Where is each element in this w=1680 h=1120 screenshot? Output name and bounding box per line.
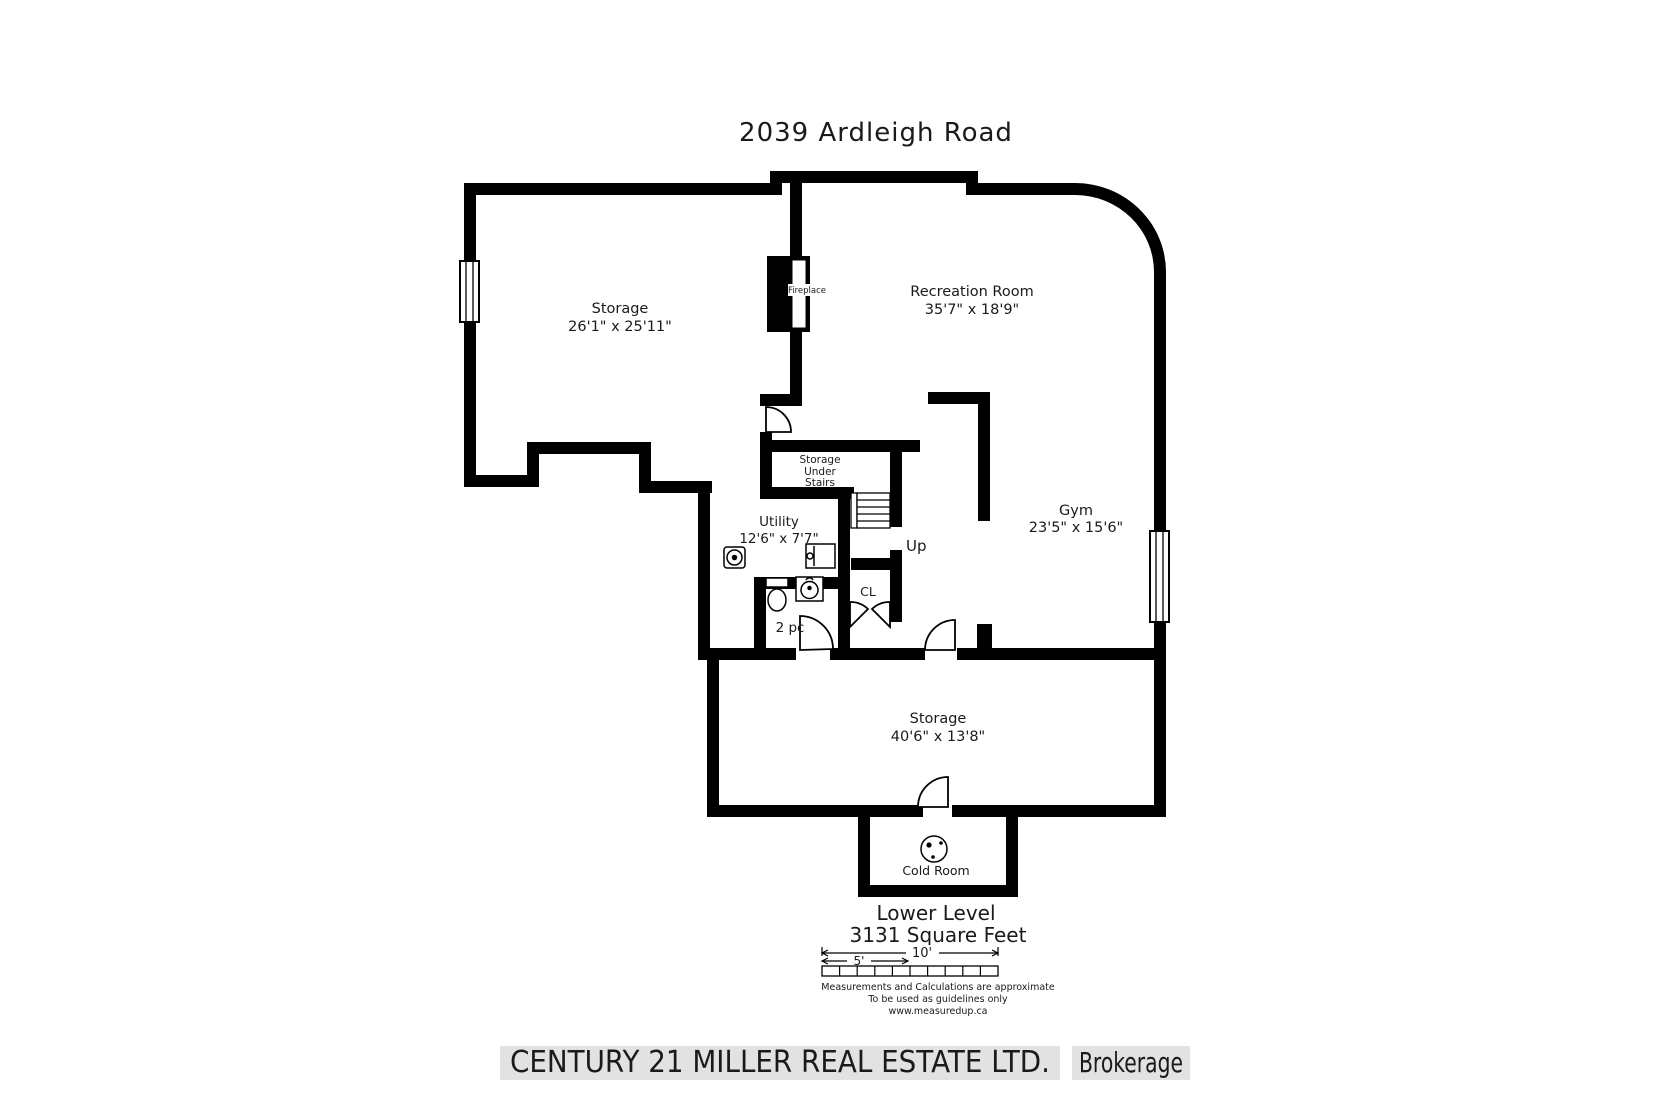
footer: Lower Level 3131 Square Feet — [850, 901, 1027, 947]
gym-name: Gym — [1059, 503, 1093, 519]
window-left — [460, 261, 479, 322]
window-right — [1150, 531, 1169, 622]
watermark-company: CENTURY 21 MILLER REAL ESTATE LTD. — [510, 1045, 1050, 1080]
fine-print: Measurements and Calculations are approx… — [821, 982, 1055, 1017]
closet-door-right — [872, 602, 890, 627]
storage-upper-name: Storage — [592, 301, 649, 317]
closet-door-left — [850, 602, 868, 627]
under-stairs-line1: Storage — [799, 454, 840, 466]
door-gym-storage — [925, 620, 955, 650]
plan-title: 2039 Ardleigh Road — [739, 118, 1013, 148]
scale-bar — [822, 945, 998, 976]
water-heater-icon — [806, 544, 835, 568]
watermark-suffix: Brokerage — [1079, 1046, 1183, 1079]
under-stairs-line3: Stairs — [805, 477, 835, 489]
fine-print-line2: To be used as guidelines only — [867, 994, 1008, 1005]
scale-5ft-label: 5' — [854, 954, 865, 968]
footer-area: 3131 Square Feet — [850, 923, 1027, 947]
utility-name: Utility — [759, 514, 799, 530]
fine-print-line1: Measurements and Calculations are approx… — [821, 982, 1055, 993]
sink-icon — [796, 577, 823, 601]
fine-print-line3: www.measuredup.ca — [888, 1006, 987, 1017]
closet-label: CL — [860, 584, 876, 599]
storage-upper-dims: 26'1" x 25'11" — [568, 319, 672, 335]
sump-pump-icon — [724, 547, 745, 568]
cold-room-label: Cold Room — [902, 863, 969, 878]
bathroom-label: 2 pc — [776, 620, 805, 636]
toilet-icon — [766, 578, 788, 611]
door-storage-hall — [766, 407, 791, 432]
floorplan-page: 2039 Ardleigh Road — [0, 0, 1680, 1120]
storage-lower-dims: 40'6" x 13'8" — [891, 729, 985, 745]
drain-icon — [921, 836, 947, 862]
staircase: Up — [851, 493, 927, 555]
recreation-dims: 35'7" x 18'9" — [925, 302, 1019, 318]
utility-dims: 12'6" x 7'7" — [739, 531, 818, 547]
scale-10ft-label: 10' — [912, 946, 932, 961]
brokerage-watermark: CENTURY 21 MILLER REAL ESTATE LTD. Broke… — [500, 1045, 1190, 1080]
floor-plan: 2039 Ardleigh Road — [0, 0, 1680, 1120]
fireplace-label: Fireplace — [788, 286, 826, 296]
gym-dims: 23'5" x 15'6" — [1029, 520, 1123, 536]
stairs-up-label: Up — [906, 537, 927, 555]
storage-lower-name: Storage — [910, 711, 967, 727]
doors — [766, 407, 955, 807]
footer-level: Lower Level — [876, 901, 995, 925]
recreation-name: Recreation Room — [910, 284, 1033, 300]
door-cold-room — [918, 777, 948, 807]
door-bathroom — [800, 616, 833, 650]
